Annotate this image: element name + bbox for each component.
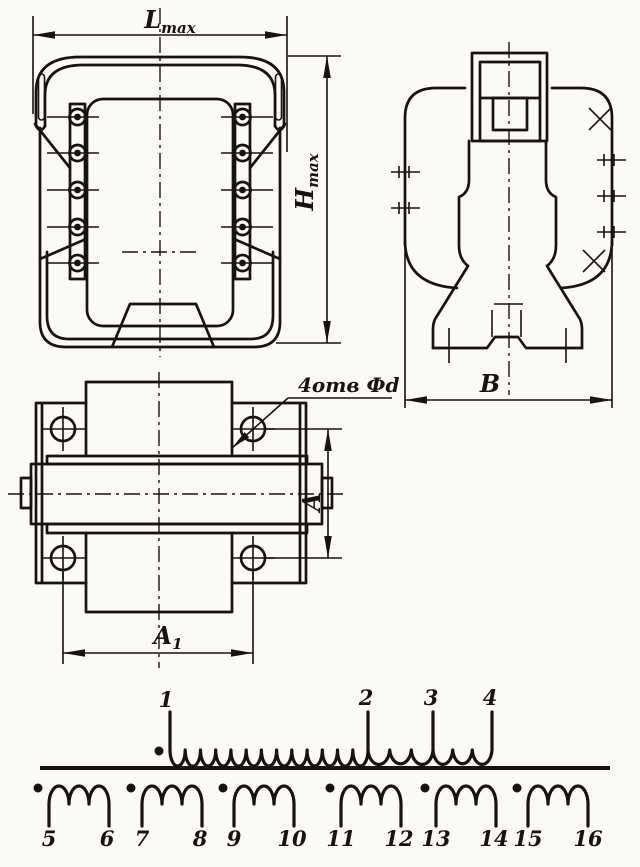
arrowhead bbox=[324, 429, 332, 451]
arrowhead bbox=[323, 321, 331, 343]
flange-bottom-edge bbox=[433, 337, 582, 348]
secondary-winding: 15 16 bbox=[513, 784, 603, 852]
terminal-label: 10 bbox=[277, 826, 307, 851]
terminal-pins-left bbox=[47, 109, 99, 271]
clamp-bolt bbox=[493, 98, 527, 130]
terminal-label: 9 bbox=[227, 826, 242, 851]
x-marks bbox=[583, 108, 611, 272]
polarity-dot bbox=[219, 784, 228, 793]
front-view: Lmax Hmax bbox=[33, 5, 341, 357]
dim-lmax-label: Lmax bbox=[143, 5, 196, 37]
terminal-label: 14 bbox=[479, 826, 508, 851]
transformer-drawing: Lmax Hmax bbox=[0, 0, 640, 867]
arrowhead bbox=[324, 536, 332, 558]
top-view: 4отв Фd A A1 bbox=[8, 372, 399, 668]
terminal-label: 5 bbox=[42, 826, 57, 851]
terminal-pin bbox=[47, 109, 99, 125]
arrowhead bbox=[231, 649, 253, 657]
terminal-label: 16 bbox=[573, 826, 603, 851]
side-view: В bbox=[391, 42, 626, 408]
terminal-label: 8 bbox=[192, 826, 208, 851]
drawing-canvas: Lmax Hmax bbox=[0, 0, 640, 867]
arrowhead bbox=[33, 31, 55, 39]
bobbin-and-skirt bbox=[433, 141, 582, 363]
holes-callout: 4отв Фd bbox=[232, 373, 399, 448]
dim-b-label: В bbox=[479, 369, 500, 398]
polarity-dot bbox=[34, 784, 43, 793]
secondary-winding: 9 10 bbox=[219, 784, 307, 852]
arrowhead bbox=[405, 396, 427, 404]
terminal-pin bbox=[47, 182, 99, 198]
primary-winding: 1 2 3 4 bbox=[155, 685, 498, 766]
terminal-label: 1 bbox=[159, 687, 174, 712]
terminal-pin bbox=[221, 182, 273, 198]
polarity-dot bbox=[326, 784, 335, 793]
terminal-pin bbox=[221, 219, 273, 235]
terminal-label: 7 bbox=[135, 826, 150, 851]
top-clamp bbox=[472, 53, 547, 141]
dim-hmax-label: Hmax bbox=[290, 152, 322, 211]
arrowhead bbox=[323, 56, 331, 78]
secondary-winding: 13 14 bbox=[421, 784, 509, 852]
terminal-label: 15 bbox=[513, 826, 542, 851]
terminal-label: 12 bbox=[384, 826, 413, 851]
core-end-tab bbox=[21, 478, 31, 508]
hole-center-tick bbox=[449, 328, 566, 363]
dim-a-label: A bbox=[297, 493, 326, 514]
strap-hook-slot bbox=[276, 74, 282, 120]
dimension-a1: A1 bbox=[63, 572, 253, 664]
secondary-winding: 5 6 bbox=[34, 784, 115, 852]
arrowhead bbox=[265, 31, 287, 39]
polarity-dot bbox=[421, 784, 430, 793]
arrowhead bbox=[63, 649, 85, 657]
terminal-pin bbox=[221, 109, 273, 125]
arrowhead bbox=[590, 396, 612, 404]
terminal-pin bbox=[47, 255, 99, 271]
strap-hook-slot bbox=[39, 74, 45, 120]
polarity-dot bbox=[155, 747, 164, 756]
dimension-hmax: Hmax bbox=[276, 56, 341, 343]
secondary-winding: 7 8 bbox=[127, 784, 208, 852]
polarity-dot bbox=[513, 784, 522, 793]
terminal-label: 11 bbox=[326, 826, 355, 851]
terminal-label: 4 bbox=[483, 685, 498, 710]
polarity-dot bbox=[127, 784, 136, 793]
terminal-pin bbox=[221, 255, 273, 271]
flange-slot bbox=[492, 310, 521, 337]
holes-callout-label: 4отв Фd bbox=[298, 373, 399, 397]
secondary-winding: 11 12 bbox=[326, 784, 414, 852]
terminal-pin bbox=[47, 219, 99, 235]
mounting-hole bbox=[41, 407, 85, 451]
terminal-pins-right bbox=[221, 109, 273, 271]
terminal-label: 2 bbox=[358, 685, 374, 710]
terminal-label: 3 bbox=[424, 685, 439, 710]
terminal-label: 13 bbox=[421, 826, 450, 851]
winding-schematic: 1 2 3 4 5 6 7 8 9 10 11 12 bbox=[34, 685, 611, 851]
dim-a1-label: A1 bbox=[151, 621, 182, 653]
terminal-label: 6 bbox=[100, 826, 115, 851]
